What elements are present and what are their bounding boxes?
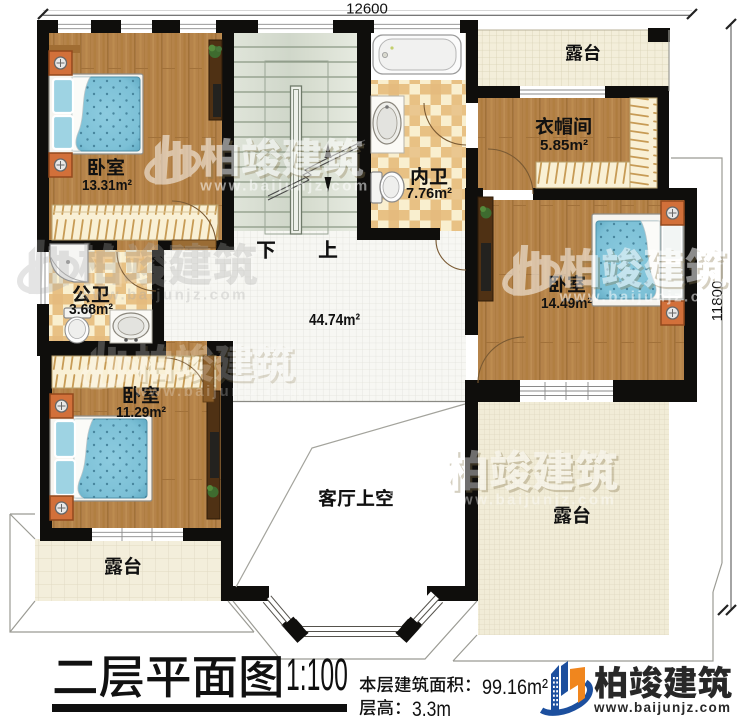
svg-text:www.baijunjz.com: www.baijunjz.com: [446, 492, 616, 509]
svg-text:99.16m²: 99.16m²: [482, 675, 548, 699]
svg-text:5.85m²: 5.85m²: [540, 137, 588, 154]
svg-text:www.baijunjz.com: www.baijunjz.com: [78, 286, 248, 303]
svg-text:44.74m²: 44.74m²: [309, 312, 360, 329]
svg-text:www.baijunjz.com: www.baijunjz.com: [559, 289, 729, 306]
svg-text:1:100: 1:100: [286, 649, 348, 700]
svg-text:13.31m²: 13.31m²: [82, 177, 132, 194]
svg-text:3.68m²: 3.68m²: [69, 301, 113, 318]
svg-text:7.76m²: 7.76m²: [406, 185, 452, 202]
svg-text:12600: 12600: [346, 1, 388, 18]
svg-text:3.3m: 3.3m: [412, 697, 451, 721]
svg-text:www.baijunjz.com: www.baijunjz.com: [134, 383, 304, 400]
svg-text:www.baijunjz.com: www.baijunjz.com: [199, 178, 369, 195]
svg-text:www.baijunjz.com: www.baijunjz.com: [593, 700, 731, 715]
svg-text:11.29m²: 11.29m²: [116, 404, 166, 421]
